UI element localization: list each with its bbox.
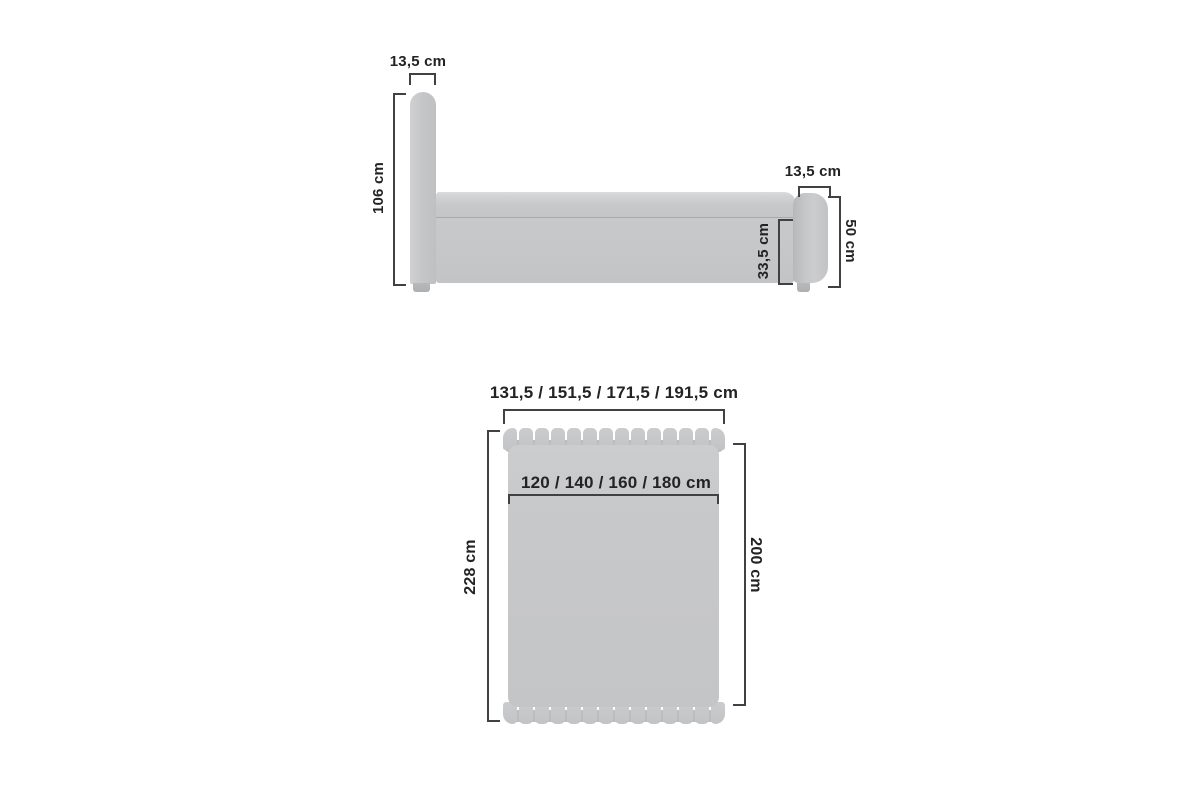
side-footboard-height-label: 50 cm [841, 206, 859, 276]
side-footboard-height-bracket [828, 196, 841, 288]
plan-mattress-width-label: 120 / 140 / 160 / 180 cm [466, 474, 766, 492]
bed-base-side [436, 218, 794, 283]
plan-mattress-width-line [508, 494, 719, 504]
plan-overall-length-bracket [487, 430, 500, 722]
side-headboard-height-label: 106 cm [370, 148, 388, 228]
side-base-height-label: 33,5 cm [755, 211, 773, 291]
side-base-height-bracket [778, 219, 793, 285]
plan-mattress-length-label: 200 cm [746, 520, 764, 610]
bed-dimensions-diagram: 13,5 cm 106 cm 13,5 cm 50 cm 33,5 cm 131… [0, 0, 1200, 800]
headboard-leg [413, 283, 430, 292]
plan-overall-width-bracket [503, 409, 725, 424]
headboard-side [410, 92, 436, 284]
mattress-side [436, 192, 796, 218]
side-footboard-width-bracket [798, 186, 831, 197]
plan-mattress-length-bracket [733, 443, 746, 706]
footboard-leg [797, 283, 810, 292]
plan-overall-length-label: 228 cm [462, 522, 480, 612]
side-footboard-width-label: 13,5 cm [753, 163, 873, 181]
footboard-side [793, 193, 828, 283]
side-headboard-width-bracket [409, 73, 436, 85]
side-headboard-width-label: 13,5 cm [358, 53, 478, 71]
side-headboard-height-bracket [393, 93, 406, 286]
plan-overall-width-label: 131,5 / 151,5 / 171,5 / 191,5 cm [464, 384, 764, 402]
